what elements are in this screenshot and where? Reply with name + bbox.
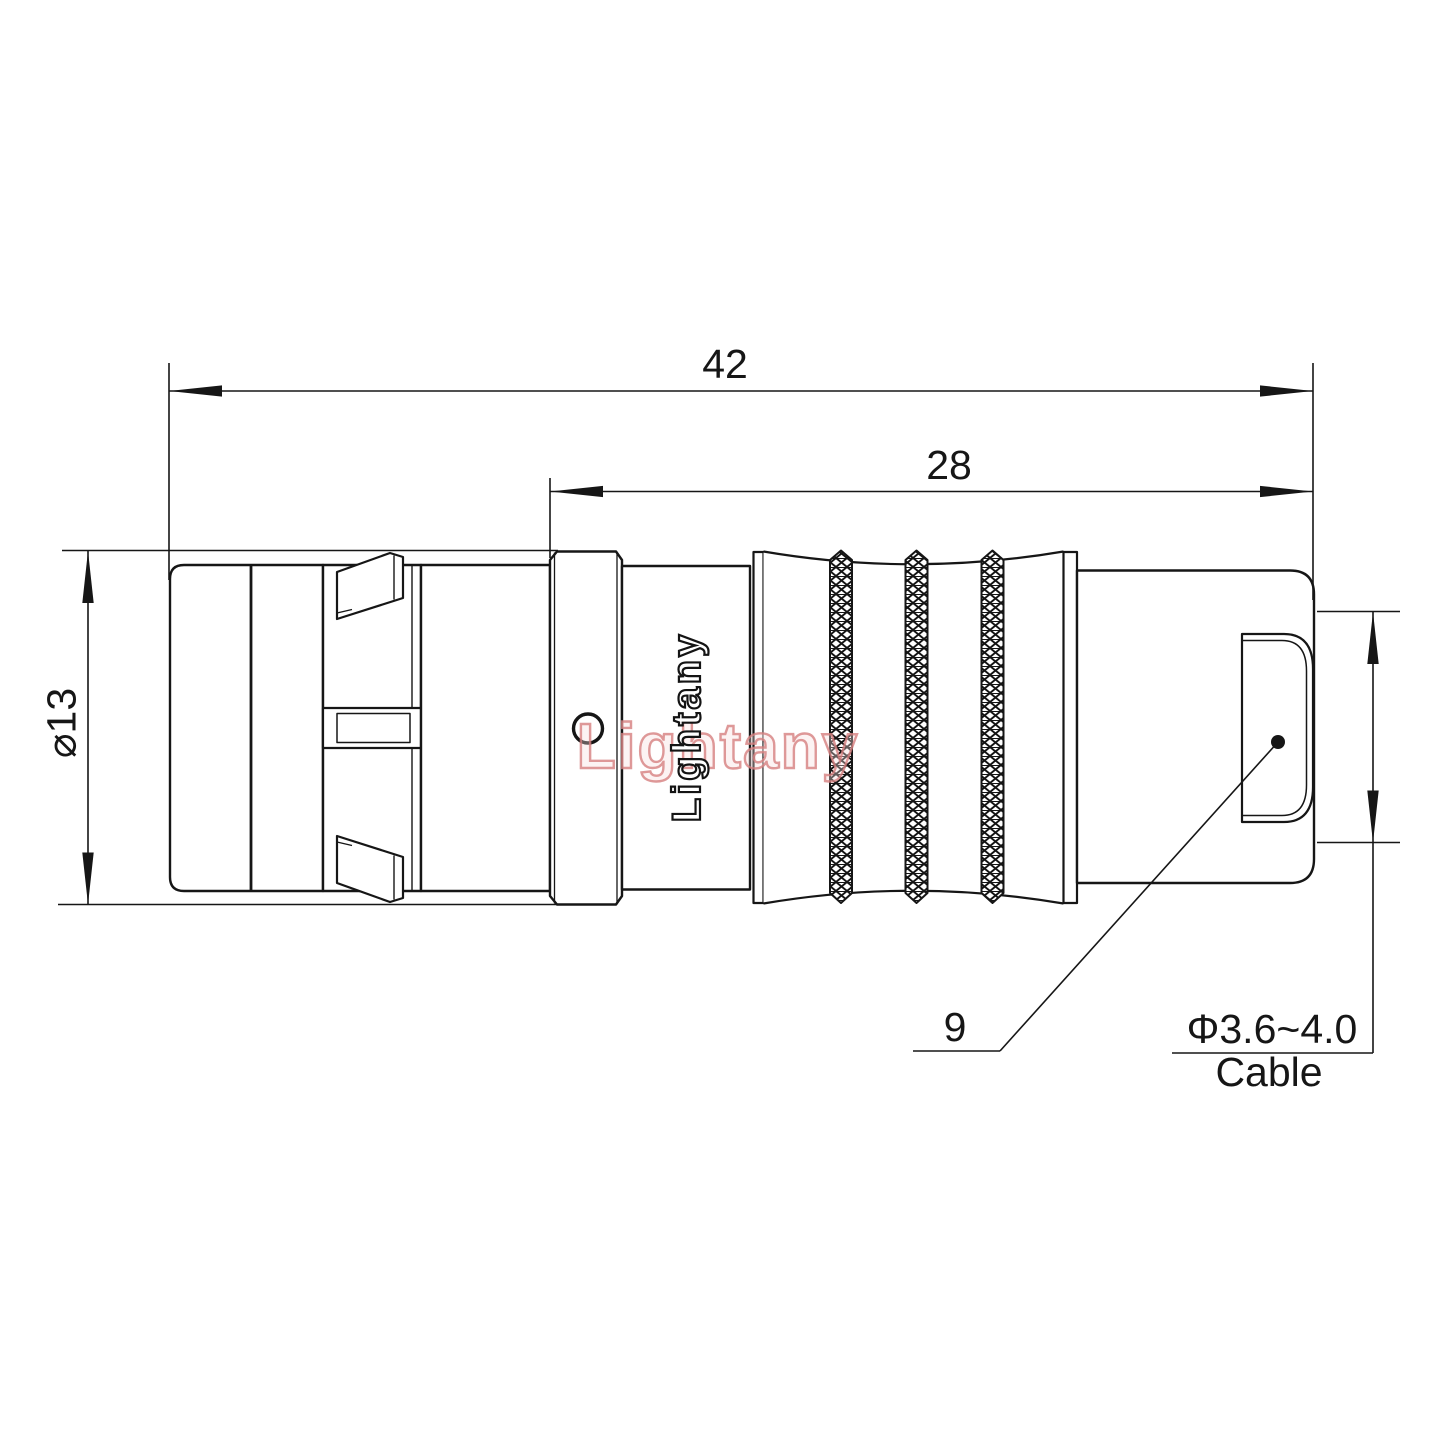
- dim-diameter-13-label: ⌀13: [42, 688, 83, 758]
- cable-text-label: Cable: [1215, 1052, 1322, 1093]
- front-sleeve: [170, 565, 323, 891]
- knurl-band-3: [982, 551, 1004, 904]
- arrow-diameter-top: [82, 551, 93, 603]
- dim-42-label: 42: [702, 344, 748, 385]
- mid-sleeve: [421, 565, 550, 891]
- dim-28-label: 28: [926, 445, 972, 486]
- arrow-42-right: [1260, 385, 1313, 396]
- knurl-band-2: [906, 551, 928, 904]
- clamp-ring-right: [1064, 552, 1078, 903]
- engraved-brand-text: Lightany: [667, 632, 707, 823]
- pink-watermark-text: Lightany: [577, 714, 860, 778]
- arrow-diameter-bottom: [82, 853, 93, 905]
- arrow-28-left: [550, 486, 603, 497]
- arrow-cable-bottom: [1367, 791, 1378, 843]
- cable-diameter-label: Φ3.6~4.0: [1187, 1009, 1358, 1050]
- arrow-cable-top: [1367, 612, 1378, 664]
- cable-recess-outer: [1242, 634, 1313, 822]
- arrow-42-left: [169, 385, 222, 396]
- dim-9-label: 9: [944, 1007, 967, 1048]
- arrow-28-right: [1260, 486, 1313, 497]
- technical-drawing-page: Lightany Lightany 42 28 ⌀13 9 Φ3.6~4.0 C…: [0, 0, 1440, 1440]
